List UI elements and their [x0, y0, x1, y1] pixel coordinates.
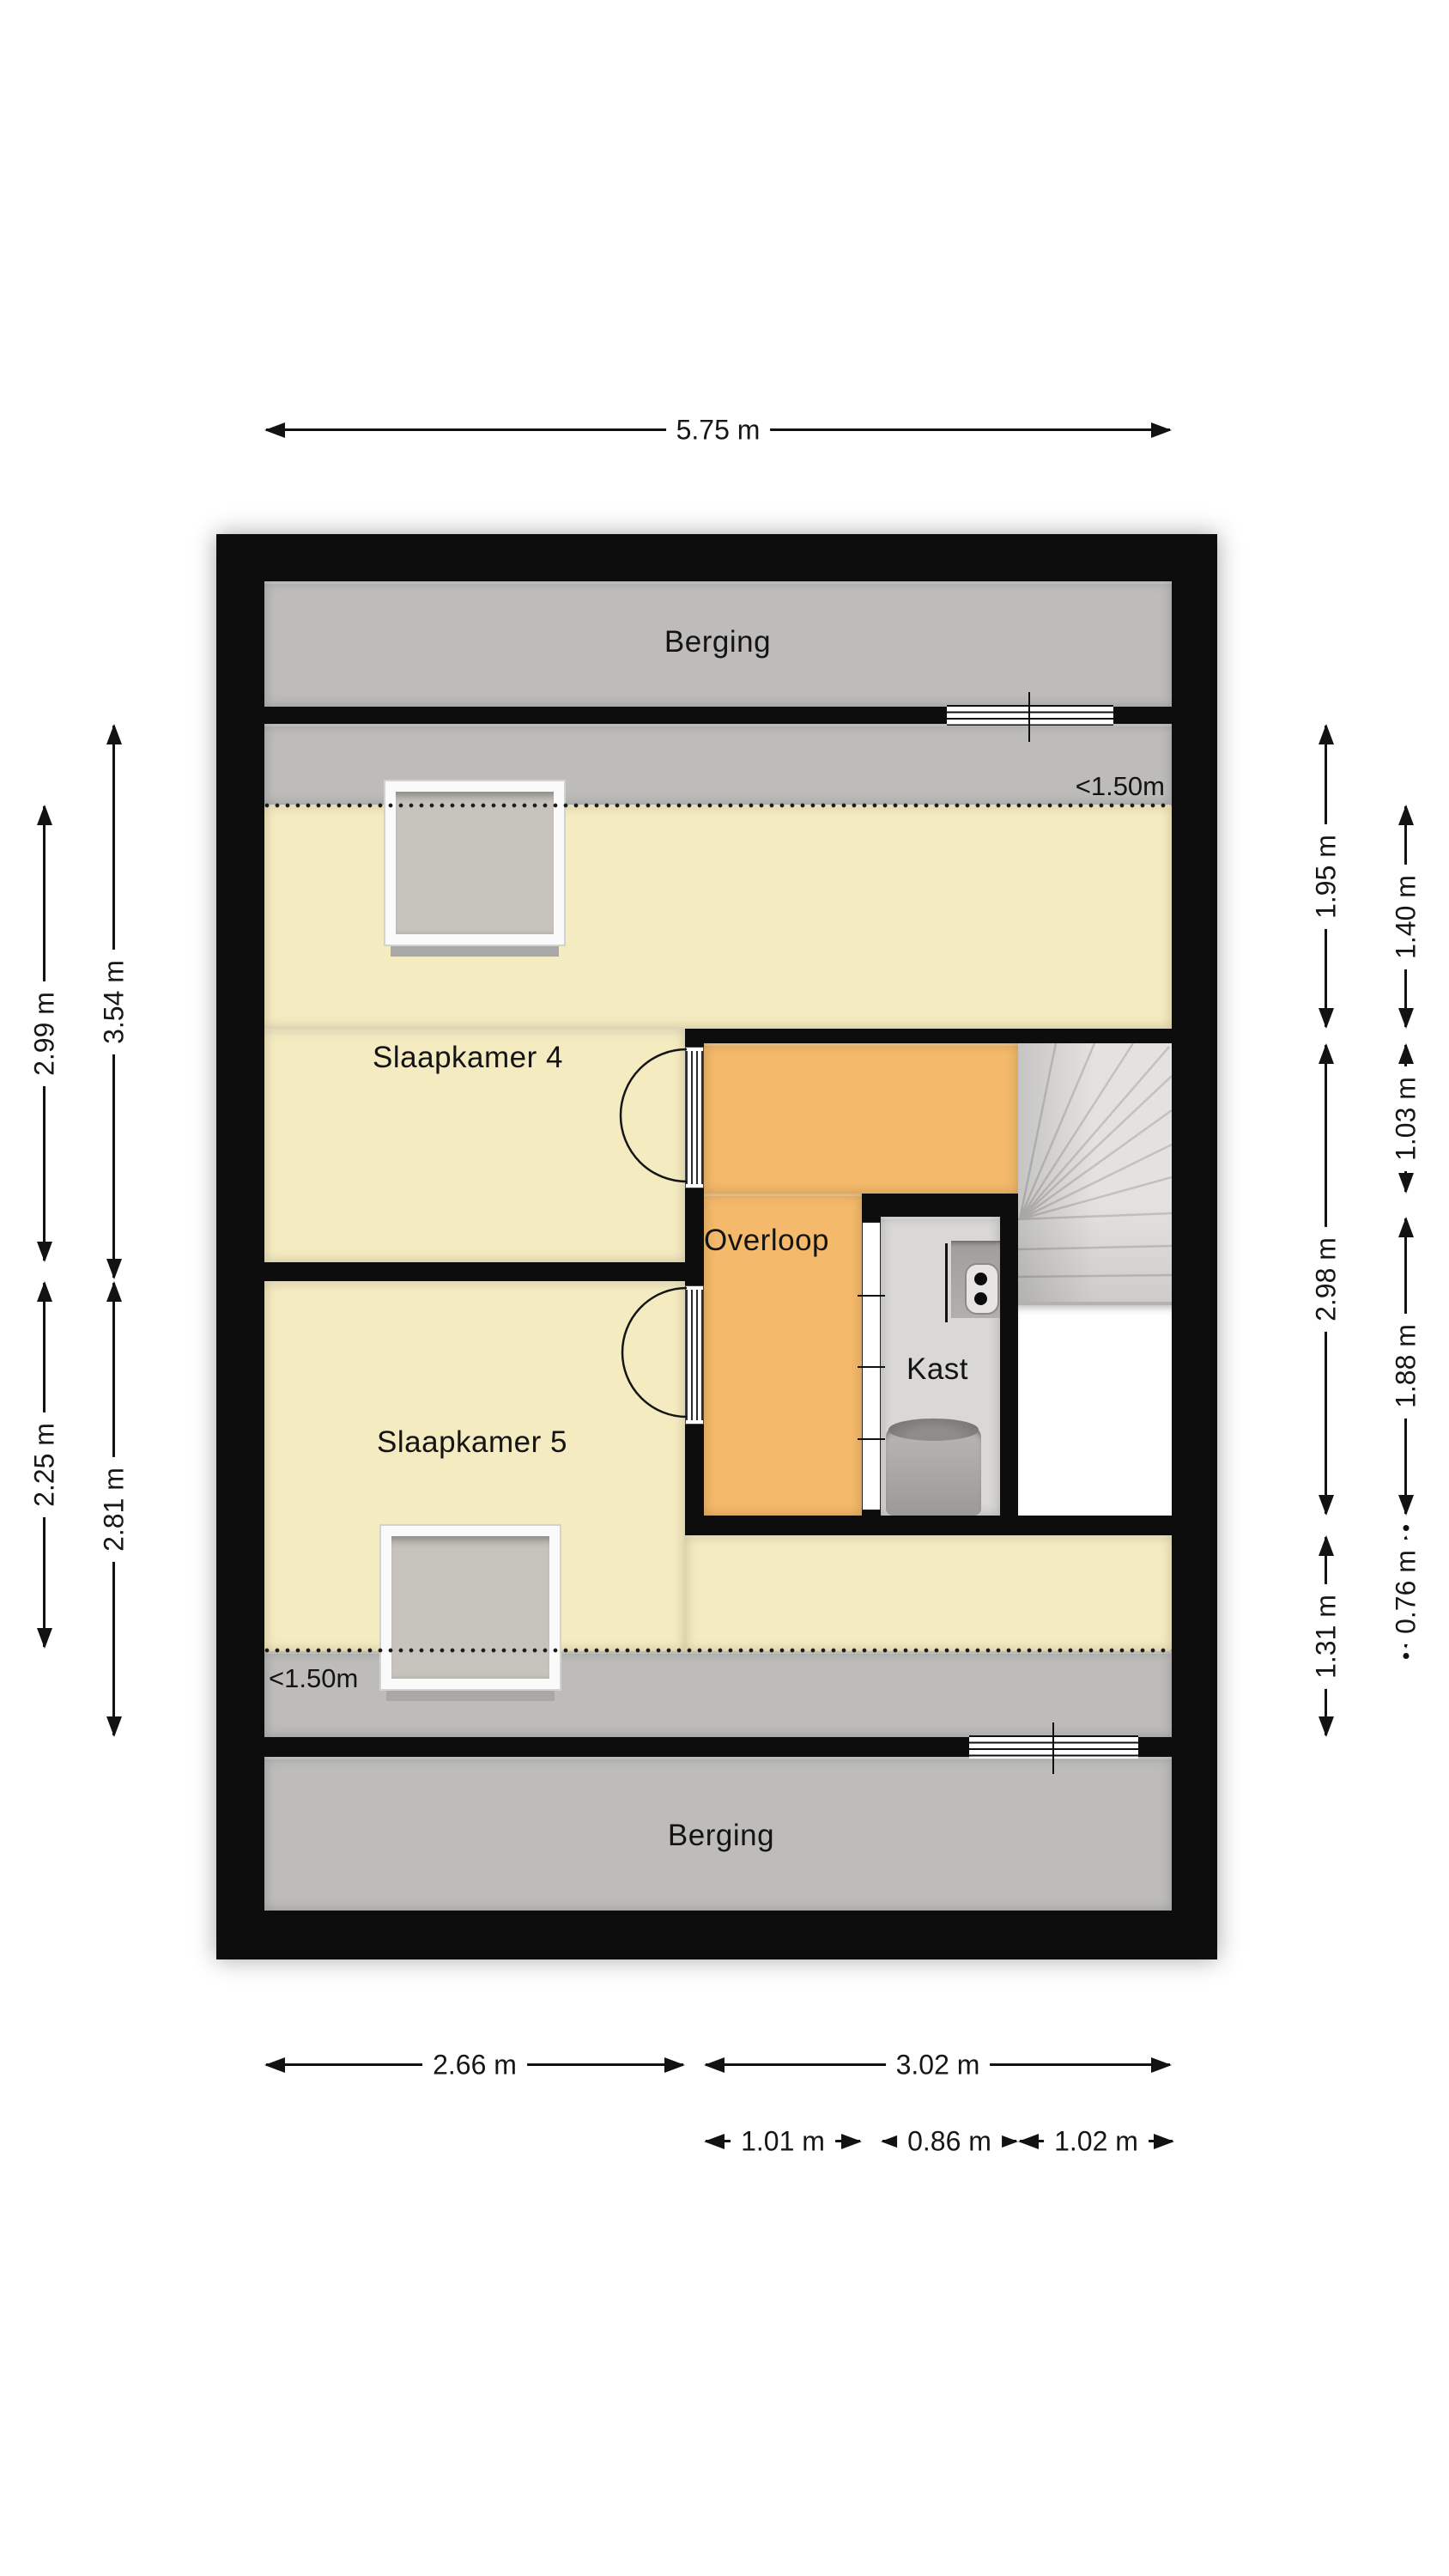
door-tick — [858, 1438, 885, 1440]
dim-label: 1.31 m — [1311, 1584, 1343, 1689]
arrow-down-icon — [106, 1716, 122, 1737]
arrow-down-icon — [1398, 1008, 1414, 1029]
dim-label: 1.88 m — [1391, 1314, 1422, 1419]
headroom-marker-top: <1.50m — [1076, 771, 1165, 802]
door-slaapkamer5 — [686, 1286, 703, 1424]
arrow-right-icon — [664, 2057, 685, 2073]
dim-left-inner-lower: 2.81 m — [103, 1281, 125, 1737]
ventilation-knob-icon — [974, 1292, 987, 1305]
label-slaapkamer-5: Slaapkamer 5 — [377, 1425, 567, 1460]
headroom-dotted-line-bottom — [264, 1648, 1172, 1653]
label-overloop: Overloop — [704, 1224, 829, 1258]
skylight-glass — [391, 1536, 549, 1679]
dim-right-inner-lower: 1.31 m — [1315, 1535, 1337, 1737]
dim-label: 1.40 m — [1391, 865, 1422, 969]
ventilation-knob-icon — [974, 1273, 987, 1285]
dim-label: 2.25 m — [29, 1413, 61, 1517]
headroom-marker-bottom: <1.50m — [269, 1663, 358, 1694]
arrow-right-icon — [1151, 422, 1172, 438]
skylight-glass — [396, 792, 554, 934]
stairs — [1018, 1043, 1172, 1305]
arrow-right-icon — [841, 2134, 862, 2149]
dim-right-inner-upper: 1.95 m — [1315, 724, 1337, 1029]
arrow-down-icon — [37, 1242, 52, 1262]
dim-label: 1.02 m — [1044, 2126, 1149, 2158]
arrow-down-icon — [37, 1628, 52, 1649]
dim-right-outer-3: 1.88 m — [1395, 1217, 1417, 1516]
dim-bottom-sub-3: 1.02 m — [1018, 2130, 1174, 2153]
window-top-centerline — [1028, 692, 1030, 742]
arrow-right-icon — [1154, 2134, 1174, 2149]
label-slaapkamer-4: Slaapkamer 4 — [373, 1041, 563, 1075]
label-kast: Kast — [906, 1352, 968, 1387]
room-slaapkamer5-right — [685, 1535, 1172, 1651]
dim-bottom-sub-1: 1.01 m — [704, 2130, 862, 2153]
dim-right-outer-4: 0.76 m — [1395, 1535, 1417, 1649]
dim-left-inner-upper: 3.54 m — [103, 724, 125, 1279]
door-slaapkamer4 — [686, 1048, 703, 1188]
dim-right-outer-2: 1.03 m — [1395, 1043, 1417, 1194]
boiler-top-cap — [888, 1419, 979, 1441]
ventilation-duct-line — [945, 1243, 948, 1322]
window-top-wall — [947, 705, 1113, 726]
dim-bottom-right-width: 3.02 m — [704, 2054, 1172, 2076]
window-bottom-centerline — [1052, 1722, 1054, 1774]
arrow-right-icon — [1151, 2057, 1172, 2073]
dim-left-outer-lower: 2.25 m — [33, 1281, 56, 1649]
arrow-down-icon — [1398, 1495, 1414, 1516]
dim-label: 2.81 m — [99, 1457, 130, 1562]
label-berging-bottom: Berging — [668, 1819, 774, 1853]
label-berging-top: Berging — [664, 625, 771, 659]
boiler — [886, 1425, 981, 1516]
dim-dot — [1404, 1525, 1410, 1531]
room-overloop-upper — [704, 1043, 1018, 1194]
dim-bottom-sub-2: 0.86 m — [881, 2130, 1018, 2153]
arrow-down-icon — [1319, 1716, 1334, 1737]
dim-label: 2.99 m — [29, 981, 61, 1086]
door-tick — [858, 1366, 885, 1368]
door-tick — [858, 1295, 885, 1297]
dim-label: 1.95 m — [1311, 824, 1343, 929]
dim-left-outer-upper: 2.99 m — [33, 805, 56, 1262]
dim-bottom-left-width: 2.66 m — [264, 2054, 685, 2076]
headroom-dotted-line-top — [264, 803, 1172, 808]
skylight-shadow — [386, 1691, 555, 1701]
stairwell-void — [1018, 1305, 1172, 1516]
dim-right-outer-1: 1.40 m — [1395, 805, 1417, 1029]
dim-label: 2.66 m — [422, 2050, 527, 2081]
arrow-down-icon — [1319, 1008, 1334, 1029]
floorplan-canvas: Berging Slaapkamer 4 Overloop Kast Slaap… — [0, 0, 1449, 2576]
skylight-slaapkamer5 — [379, 1524, 561, 1691]
dim-label: 3.54 m — [99, 950, 130, 1054]
dim-label: 3.02 m — [886, 2050, 991, 2081]
dim-label: 2.98 m — [1311, 1227, 1343, 1332]
dim-top-total-width: 5.75 m — [264, 419, 1172, 441]
kast-door — [863, 1223, 880, 1510]
dim-label: 5.75 m — [666, 415, 771, 447]
skylight-shadow — [391, 946, 559, 957]
dim-dot — [1404, 1653, 1410, 1659]
arrow-down-icon — [1398, 1173, 1414, 1194]
dim-label: 1.03 m — [1391, 1066, 1422, 1171]
arrow-down-icon — [106, 1259, 122, 1279]
stairs-drawing — [1018, 1043, 1172, 1305]
dim-label: 0.76 m — [1391, 1540, 1422, 1644]
dim-label: 1.01 m — [731, 2126, 835, 2158]
arrow-down-icon — [1319, 1495, 1334, 1516]
ventilation-unit-panel — [965, 1263, 999, 1315]
dim-right-inner-middle: 2.98 m — [1315, 1043, 1337, 1516]
dim-label: 0.86 m — [897, 2126, 1002, 2158]
